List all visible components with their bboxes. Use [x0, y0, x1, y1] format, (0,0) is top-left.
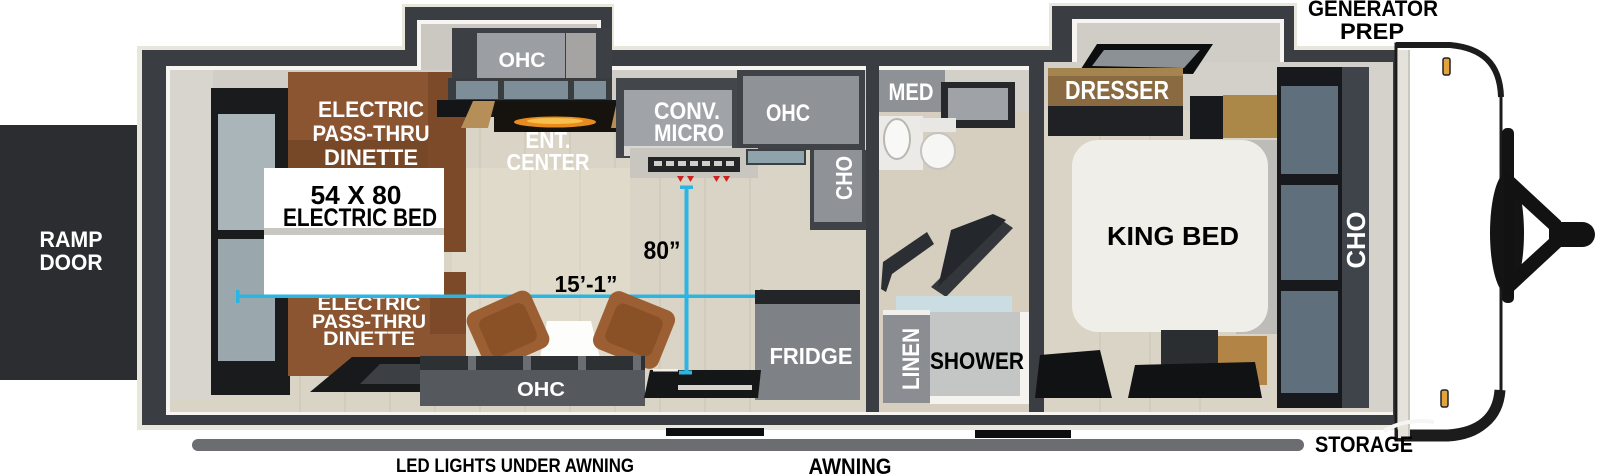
svg-text:GENERATOR: GENERATOR — [1308, 0, 1438, 21]
svg-text:OHC: OHC — [517, 379, 565, 401]
svg-text:DINETTE: DINETTE — [323, 329, 415, 350]
svg-text:ELECTRIC: ELECTRIC — [318, 97, 424, 122]
svg-text:CHO: CHO — [1341, 212, 1371, 269]
svg-text:OHC: OHC — [499, 49, 546, 72]
svg-text:CENTER: CENTER — [507, 149, 590, 175]
svg-text:CHO: CHO — [831, 156, 857, 200]
svg-text:15’-1”: 15’-1” — [555, 271, 618, 297]
svg-text:SHOWER: SHOWER — [930, 348, 1024, 375]
svg-text:OHC: OHC — [766, 100, 810, 127]
svg-text:PASS-THRU: PASS-THRU — [313, 121, 430, 146]
svg-text:KING BED: KING BED — [1107, 221, 1239, 251]
svg-text:MED: MED — [889, 79, 934, 106]
svg-text:STORAGE: STORAGE — [1315, 432, 1413, 457]
svg-text:MICRO: MICRO — [654, 120, 724, 147]
svg-text:RAMP: RAMP — [40, 227, 103, 252]
svg-text:ELECTRIC BED: ELECTRIC BED — [283, 204, 437, 232]
svg-text:DOOR: DOOR — [40, 250, 103, 275]
svg-text:FRIDGE: FRIDGE — [770, 343, 853, 369]
svg-text:LINEN: LINEN — [898, 328, 925, 390]
svg-text:PREP: PREP — [1340, 19, 1404, 44]
svg-text:DINETTE: DINETTE — [324, 145, 418, 170]
svg-text:80”: 80” — [644, 237, 681, 265]
svg-text:DRESSER: DRESSER — [1065, 75, 1169, 105]
svg-text:AWNING: AWNING — [809, 454, 892, 475]
svg-text:LED LIGHTS UNDER AWNING: LED LIGHTS UNDER AWNING — [396, 455, 634, 475]
